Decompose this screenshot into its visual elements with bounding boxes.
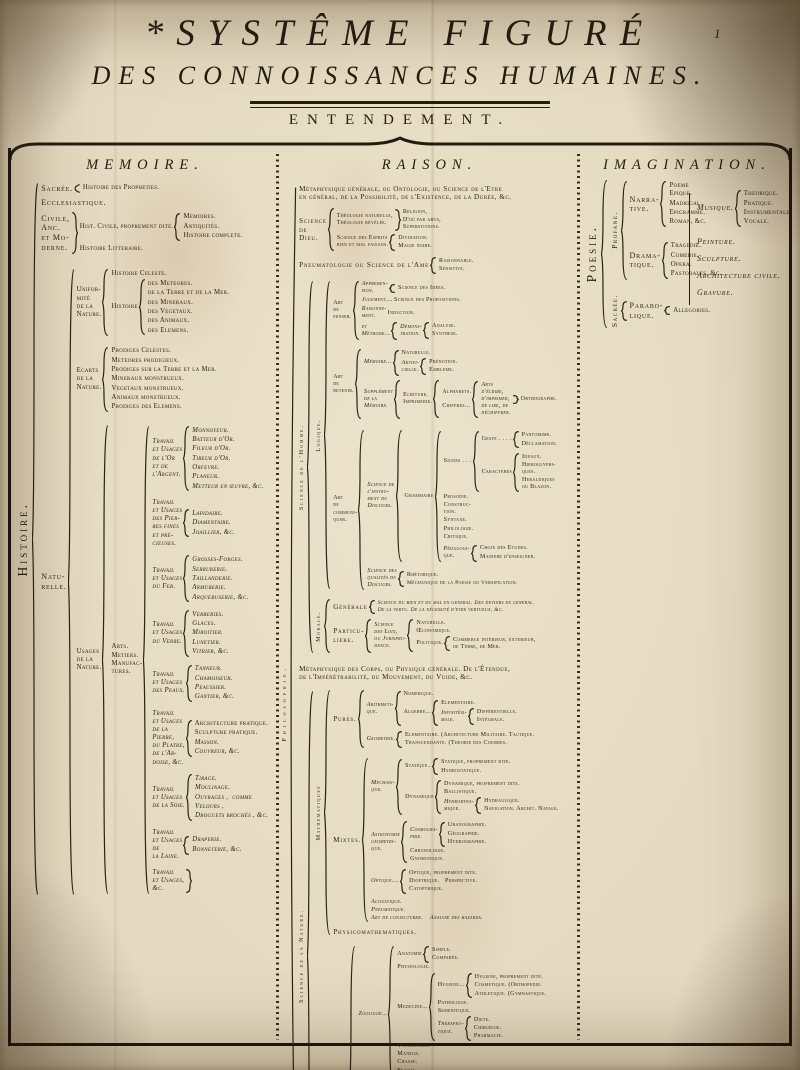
tree-node: des Elemens. [148, 327, 229, 335]
node-label: Travail et Usages du Fer. [152, 567, 182, 591]
tree-node: Prosodie. [444, 494, 558, 501]
tree-node: Orfevre. [192, 464, 263, 472]
node-label: Prodiges sur la Terre et la Mer. [111, 366, 216, 374]
node-label: Pneumatique. [371, 907, 405, 914]
tree-node: Science du bien et du mal en general. De… [378, 600, 535, 613]
brace-icon [472, 381, 479, 418]
node-label: Religion, D'où par abus, Superstitions. [403, 209, 441, 230]
tree-node: Unifor- mité de la Nature.Histoire Celes… [77, 269, 269, 336]
column-header-imagination: IMAGINATION. [584, 157, 790, 174]
node-children: Memoires.Antiquités.Histoire complete. [183, 213, 242, 241]
tree-node: Science des qualités du Discours.Rhétori… [367, 568, 557, 589]
brace-icon [435, 780, 442, 814]
branch-philosophie: Philosophie. [282, 665, 289, 741]
brace-icon [349, 946, 356, 1070]
plate-number: 1 [714, 26, 721, 42]
brace-icon [735, 190, 742, 227]
node-label: Taillanderie. [192, 575, 233, 583]
raison-tree: Philosophie.Métaphysique générale, ou On… [282, 183, 577, 1070]
tree-node: Armurerie. [192, 584, 248, 592]
tree-node: Critique. [444, 534, 558, 541]
node-children: Ideaux.Hieroglyphi- ques.Heraldiques ou … [522, 453, 556, 492]
node-label: Arts d'écrire, d'imprimer, de lire, de d… [481, 382, 510, 417]
node-label: Cosmogra- phie. [410, 827, 438, 841]
node-label: Diamentaire. [192, 519, 231, 527]
node-label: Construc- tion. [444, 502, 471, 516]
node-label: Lapidaire. [192, 510, 223, 518]
node-label: Vitrier, &c. [192, 648, 229, 656]
tree-node: Monnoyeur. [192, 427, 263, 435]
node-label: Vétérinaire. [397, 1043, 430, 1050]
node-label: Manege. [397, 1051, 420, 1058]
node-label: Géographie. [448, 831, 480, 838]
brace-icon [391, 322, 398, 340]
beaux-arts-list: Musique.Theorique.Pratique.Instrumentale… [696, 189, 792, 298]
node-label: Optique, proprement dite. [409, 870, 477, 877]
node-label: Prosodie. [444, 494, 469, 501]
node-label: Diete. [474, 1017, 490, 1024]
node-children: Signes . . .Geste . . . .Pantomime.Décla… [444, 430, 558, 562]
node-label: Déclamation. [522, 441, 558, 448]
tree-node: Théologie naturelle, Théologie révélée.R… [337, 209, 441, 231]
node-label: Vocale. [744, 218, 769, 226]
tree-node: Hieroglyphi- ques. [522, 462, 556, 476]
node-label: Art de retenir. [333, 374, 354, 395]
node-label: Analyse. [432, 323, 456, 330]
node-label: Musique. [697, 203, 734, 213]
tree-node: Ballistique. [444, 789, 559, 796]
brace-icon [74, 184, 81, 193]
tree-node: Infinitési- male.Différentielle.Intégral… [441, 708, 517, 725]
node-label: Chronologie. [410, 848, 445, 855]
tree-node: Artifi- cielle.Prénotion.Embleme. [402, 358, 458, 375]
node-children: Art de penser.Apprehen- sion.Science des… [333, 280, 557, 590]
tree-node: Gnomonique. [410, 856, 486, 863]
node-label: Hydrodyna- mique. [444, 799, 474, 813]
tree-node: Art de communi- quer.Science de l'instru… [333, 429, 557, 590]
node-children: Allegories. [673, 306, 710, 315]
tree-node: DynamiqueDynamique, proprement dite.Ball… [405, 780, 559, 815]
tree-node: Travail et Usages de la Pierre, du Platr… [152, 710, 268, 767]
node-label: Verreries. [192, 611, 223, 619]
brace-icon [512, 395, 519, 404]
node-children: Elementaire.Infinitési- male.Différentie… [441, 699, 517, 725]
node-children: Grosses-Forges.Serrurerie.Taillanderie.A… [192, 556, 248, 603]
node-label: Pharmacie. [474, 1033, 503, 1040]
node-children: Parabo- lique.Allegories. [630, 301, 711, 321]
tree-node: Fileur d'Or. [192, 445, 263, 453]
tree-node: Antiquités. [183, 223, 242, 231]
node-label: Elementaire. [441, 700, 475, 707]
tree-node: Divination. [398, 235, 432, 242]
node-label: Science des Esprits bien et mal faisans. [337, 235, 389, 249]
node-label: Allegories. [673, 307, 710, 315]
node-label: Fileur d'Or. [192, 445, 230, 453]
tree-node: Elementaire. [441, 700, 517, 707]
node-label: Dioptrique. Perspective. [409, 878, 477, 885]
node-label: Mathematiques [316, 785, 323, 840]
brace-icon [183, 555, 190, 602]
tree-node: Memoires. [183, 213, 242, 221]
node-label: Comparée. [432, 955, 459, 962]
node-label: Démons- tration. [400, 324, 422, 338]
brace-icon [186, 720, 193, 757]
brace-icon [186, 774, 193, 821]
tree-node: Vétérinaire. [397, 1043, 546, 1050]
node-children: Naturelle.Œconomique.Politique.Commerce … [416, 619, 535, 652]
node-label: Droguets brochés , &c. [195, 812, 268, 820]
brace-icon [185, 869, 192, 893]
tree-node: Numerique. [404, 691, 518, 698]
node-label: Science des Idées. [398, 285, 445, 292]
tree-node: Verreries. [192, 611, 229, 619]
tree-node: Supplément de la Mémoire.Ecriture. Impri… [364, 379, 557, 418]
node-label: Générale [333, 603, 367, 611]
node-label: Physicomathematiques. [333, 928, 417, 936]
node-children: Optique, proprement dite.Dioptrique. Per… [409, 869, 477, 894]
tree-node: Usages de la Nature.Arts. Metiers. Manuf… [77, 425, 269, 895]
brace-icon [186, 665, 193, 702]
node-label: Histoire Litteraire. [80, 245, 143, 253]
node-label: Particu- liere. [333, 627, 364, 644]
node-label: Ballistique. [444, 789, 477, 796]
node-label: Natu- relle. [41, 572, 66, 591]
brace-icon [290, 187, 297, 1070]
tree-node: Instrumentale. [744, 209, 792, 217]
node-label: Heraldiques ou Blazon. [522, 477, 555, 491]
tree-node: Philologie. [444, 526, 558, 533]
brace-icon [444, 636, 451, 651]
node-label: Science de la Nature. [299, 909, 306, 1003]
node-label: Tanneur. [195, 665, 222, 673]
node-label: Athletique. (Gymnastique. [475, 991, 547, 998]
tree-node: Analyse. [432, 323, 458, 330]
tree-node: Travail et Usages du Verre.Verreries.Gla… [152, 610, 268, 657]
branch-poesie: Poesie. [584, 225, 600, 282]
tree-node: CaracteresIdeaux.Hieroglyphi- ques.Heral… [482, 453, 558, 492]
brace-icon [401, 821, 408, 863]
brace-icon [660, 181, 667, 227]
tree-node: Joaillier, &c. [192, 529, 235, 537]
node-children: Analyse.Synthese. [432, 322, 458, 339]
tree-node: des Meteores. [148, 280, 229, 288]
node-label: Instrumentale. [744, 209, 792, 217]
node-label: Caracteres [482, 469, 512, 476]
brace-icon [601, 180, 608, 328]
tree-node: Art de penser.Apprehen- sion.Science des… [333, 281, 557, 340]
node-children: Uranographie.Géographie.Hydrographie. [448, 822, 487, 847]
tree-node: Œconomique. [416, 628, 535, 635]
tree-node: Heraldiques ou Blazon. [522, 477, 556, 491]
tree-node: Ecarts de la Nature.Prodiges Celestes.Me… [77, 347, 269, 412]
node-label: Mémoire... [364, 359, 392, 366]
tree-node: Hygiene, proprement dite. [475, 974, 547, 981]
tree-node: Orthographe. [521, 396, 557, 403]
node-label: Cosmetique. (Orthopedie. [475, 982, 542, 989]
node-children: Statique..Statique, proprement dite.Hydr… [405, 758, 559, 815]
node-label: Navigation. Archit. Navale. [484, 806, 559, 813]
node-label: Monnoyeur. [192, 427, 229, 435]
tree-node: Mineraux monstrueux. [111, 375, 216, 383]
node-children: des Meteores.de la Terre et de la Mer.de… [148, 279, 229, 335]
node-label: Grammaire [405, 493, 434, 500]
node-children: Religion, D'où par abus, Superstitions. [403, 209, 441, 231]
node-label: des Mineraux. [148, 299, 193, 307]
tree-node: Bonneterie, &c. [192, 846, 241, 854]
node-label: Œconomique. [416, 628, 451, 635]
node-children: Rhétorique.Méchanique de la Poesie ou Ve… [407, 571, 518, 587]
tree-node: Planeur. [192, 473, 263, 481]
node-children: Hydraulique.Navigation. Archit. Navale. [484, 797, 559, 814]
tree-node: Prodiges des Elemens. [111, 403, 216, 411]
node-label: Hydrostatique. [441, 768, 481, 775]
tree-node: Droguets brochés , &c. [195, 812, 268, 820]
tree-node: Peinture. [697, 237, 792, 247]
tree-node: Arquebuserie, &c. [192, 594, 248, 602]
node-children: Apprehen- sion.Science des Idées.Jugemen… [362, 281, 461, 340]
node-children: Divination.Magie noire. [398, 234, 432, 251]
page-title-line1: *SYSTÊME FIGURÉ [0, 12, 800, 55]
tree-node: Science de l'Homme.Logique.Art de penser… [299, 280, 559, 654]
node-children: Monnoyeur.Batteur d'Or.Fileur d'Or.Tireu… [192, 426, 263, 491]
brace-icon [389, 234, 396, 251]
node-label: Joaillier, &c. [192, 529, 235, 537]
node-children: Arts. Metiers. Manufac- tures.Travail et… [111, 425, 268, 895]
node-label: Art de communi- quer. [333, 495, 357, 523]
tree-node: Statique, proprement dite. [441, 759, 510, 766]
tree-node: Naturelle. [402, 350, 458, 357]
node-label: Statique.. [405, 763, 431, 770]
node-children: Architecture pratique.Sculpture pratique… [195, 719, 269, 756]
brace-icon [466, 973, 473, 998]
tree-node: Chronologie. [410, 848, 486, 855]
double-rule [250, 101, 550, 108]
brace-icon [398, 571, 405, 587]
tree-node: Glaces. [192, 620, 229, 628]
node-label: Mixtes. [333, 836, 361, 844]
node-label: Catoptrique. [409, 886, 443, 893]
brace-icon [473, 431, 480, 492]
tree-node: Démons- tration.Analyse.Synthese. [400, 322, 458, 339]
tree-node: Induction. [388, 310, 415, 317]
node-children: Tirage.Moulinage.Ouvrages , commeVelours… [195, 774, 268, 821]
tree-node: et Méthode...Démons- tration.Analyse.Syn… [362, 321, 461, 339]
node-label: Transcendante. (Theorie des Courbes. [405, 740, 507, 747]
brace-icon [435, 431, 442, 562]
node-label: Mineraux monstrueux. [111, 375, 184, 383]
node-children: Arithmeti- que.Numerique.Algebre...Eleme… [367, 690, 535, 749]
node-label: Hygiene... [438, 982, 465, 989]
node-label: Maniere d'enseigner. [480, 554, 535, 561]
node-children: Histoire des Propheties. [83, 184, 159, 193]
column-raison: RAISON. Philosophie.Métaphysique général… [282, 157, 577, 1070]
node-children: Alphabets. Chiffres...Arts d'écrire, d'i… [442, 380, 557, 418]
brace-icon [471, 545, 478, 562]
tree-node: Chasse. [397, 1059, 546, 1066]
tree-node: Algebre...Elementaire.Infinitési- male.D… [404, 699, 518, 725]
tree-node: Allegories. [673, 307, 710, 315]
node-label: Orthographe. [521, 396, 557, 403]
node-label: Animaux monstrueux. [111, 394, 180, 402]
column-divider-left [276, 154, 279, 1040]
node-label: Infinitési- male. [441, 710, 467, 724]
tree-node: MathematiquesPures.Arithmeti- que.Numeri… [316, 689, 559, 936]
node-label: Travail et Usages des Pier- res fines et… [152, 499, 182, 548]
tree-node: Sensitive. [439, 266, 474, 273]
brace-icon [513, 431, 520, 448]
tree-node: Hydrodyna- mique.Hydraulique.Navigation.… [444, 797, 559, 814]
node-label: Induction. [388, 310, 415, 317]
tree-node: Batteur d'Or. [192, 436, 263, 444]
tree-node: AnatomieSimple.Comparée. [397, 946, 546, 963]
node-label: Jugement.... [362, 297, 393, 304]
frame-left [8, 148, 11, 1045]
node-children: Diete.Chirurgie.Pharmacie. [474, 1016, 503, 1041]
tree-node: Medecine...Hygiene...Hygiene, proprement… [397, 973, 546, 1042]
node-label: Prodiges Celestes. [111, 347, 171, 355]
brace-icon [432, 758, 439, 775]
brace-icon [400, 869, 407, 894]
tree-node: Acoustique. [371, 899, 559, 906]
column-header-raison: RAISON. [282, 157, 577, 174]
brace-icon [662, 242, 669, 279]
tree-node: Musique.Theorique.Pratique.Instrumentale… [697, 190, 792, 227]
node-label: Raisonnable. [439, 258, 474, 265]
node-label: Travail et Usages de la Laine. [152, 829, 182, 862]
node-label: Rhétorique. [407, 572, 439, 579]
arts-divider-line [689, 193, 690, 305]
node-children: Science des Loix, ou Jurispru- dence.Nat… [374, 619, 535, 653]
node-label: Apprehen- sion. [362, 281, 388, 295]
node-label: Morale. [316, 611, 323, 642]
tree-node: Ouvrages , comme [195, 794, 268, 802]
node-label: Sculpture pratique. [195, 729, 258, 737]
node-label: Magie noire. [398, 243, 432, 250]
brace-icon [465, 1016, 472, 1041]
brace-icon [358, 690, 365, 748]
node-label: Arquebuserie, &c. [192, 594, 248, 602]
brace-icon [355, 349, 362, 419]
tree-node: Chirurgie. [474, 1025, 503, 1032]
node-label: Histoire [111, 303, 137, 311]
node-children: Sacrée.Histoire des Propheties.Ecclesias… [41, 183, 268, 896]
tree-node: Cosmetique. (Orthopedie. [475, 982, 547, 989]
brace-icon [395, 691, 402, 726]
node-label: Algebre... [404, 709, 432, 716]
node-label: Hygiene, proprement dite. [475, 974, 543, 981]
brace-icon [143, 426, 150, 894]
brace-icon [358, 430, 365, 590]
node-label: Métaphysique générale, ou Ontologie, ou … [299, 185, 512, 202]
brace-icon [423, 322, 430, 339]
tree-node: Science des Propositions. [394, 297, 461, 304]
tree-node: Zoologie...AnatomieSimple.Comparée.Physi… [358, 946, 546, 1070]
brace-icon [468, 708, 475, 725]
brace-icon [183, 509, 190, 537]
tree-node: Science des Loix, ou Jurispru- dence.Nat… [374, 619, 535, 652]
node-children: Lapidaire.Diamentaire.Joaillier, &c. [192, 509, 235, 537]
node-label: Statique, proprement dite. [441, 759, 510, 766]
tree-node: Histoire complete. [183, 232, 242, 240]
tree-node: Masson. [195, 739, 269, 747]
node-label: Metteur en œuvre, &c. [192, 483, 263, 491]
node-label: Gantier, &c. [195, 693, 234, 701]
node-label: Politique. [416, 640, 443, 647]
tree-node: Pantomime. [522, 432, 558, 439]
tree-node: Intégrale. [477, 717, 517, 724]
node-label: Sensitive. [439, 266, 465, 273]
tree-node: Gravure. [697, 288, 792, 298]
node-children: Mémoire...Naturelle.Artifi- cielle.Préno… [364, 349, 557, 420]
tree-node: Tireur d'Or. [192, 455, 263, 463]
tree-node: Travail et Usages, &c. [152, 869, 268, 893]
node-children: GénéraleScience du bien et du mal en gen… [333, 599, 535, 653]
node-children: Hist. Civile, proprement dite.Memoires.A… [80, 212, 243, 254]
tree-node: Naturelle. [416, 620, 535, 627]
tree-node: Athletique. (Gymnastique. [475, 991, 547, 998]
node-children: Science de l'instru- ment du Discours.Gr… [367, 429, 557, 590]
tree-node: Architecture pratique. [195, 720, 269, 728]
tree-node: Uranographie. [448, 822, 487, 829]
brace-icon [362, 758, 369, 922]
tree-node: Velours , [195, 803, 268, 811]
node-label: Civile, Anc. et Mo- derne. [41, 214, 70, 252]
tree-node: Sacrée.Histoire des Propheties. [41, 184, 268, 194]
tree-node: Animaux monstrueux. [111, 394, 216, 402]
brace-icon [324, 599, 331, 653]
tree-node: Pures.Arithmeti- que.Numerique.Algebre..… [333, 690, 559, 749]
tree-node: Mémoire...Naturelle.Artifi- cielle.Préno… [364, 349, 557, 375]
tree-node: Alphabets. Chiffres...Arts d'écrire, d'i… [442, 381, 557, 418]
tree-node: Maniere d'enseigner. [480, 554, 535, 561]
tree-node: Couvreur, &c. [195, 748, 269, 756]
node-label: Planeur. [192, 473, 219, 481]
brace-icon [433, 380, 440, 418]
brace-icon [183, 426, 190, 491]
node-label: Miroitier. [192, 629, 223, 637]
brace-icon [393, 350, 400, 376]
node-label: Art de conjecturer. Analyse des hazards. [371, 915, 483, 922]
node-children: Naturelle.Artifi- cielle.Prénotion.Emble… [402, 349, 458, 375]
tree-node: Religion, D'où par abus, Superstitions. [403, 209, 441, 230]
tree-node: Mechani- que.Statique..Statique, proprem… [371, 758, 559, 815]
tree-node: Histoire des Propheties. [83, 184, 159, 192]
tree-node: Geometrie.Elementaire. (Architecture Mil… [367, 731, 535, 748]
node-label: Simple. [432, 947, 451, 954]
tree-node: Art de conjecturer. Analyse des hazards. [371, 915, 559, 922]
node-label: Signes . . . [444, 458, 472, 465]
tree-node: Sculpture pratique. [195, 729, 269, 737]
tree-node: de la Terre et de la Mer. [148, 289, 229, 297]
node-label: Memoires. [183, 213, 215, 221]
tree-node: Pneumatique. [371, 907, 559, 914]
node-children: Simple.Comparée. [432, 947, 459, 964]
tree-node: Optique, proprement dite. [409, 870, 477, 877]
node-label: Batteur d'Or. [192, 436, 235, 444]
node-label: Dynamique [405, 794, 434, 801]
tree-node: Comparée. [432, 955, 459, 962]
tree-node: GénéraleScience du bien et du mal en gen… [333, 600, 535, 614]
tree-node: Prodiges sur la Terre et la Mer. [111, 366, 216, 374]
brace-icon [396, 430, 403, 562]
node-children: Raisonnable.Sensitive. [439, 257, 474, 274]
node-label: Ecclesiastique. [41, 198, 106, 208]
tree-node: Lapidaire. [192, 510, 235, 518]
tree-node: Philosophie.Métaphysique générale, ou On… [282, 183, 577, 1070]
tree-node: Science des Idées. [398, 285, 445, 292]
tree-node: Ecclesiastique. [41, 198, 268, 208]
tree-node: Draperie. [192, 836, 241, 844]
